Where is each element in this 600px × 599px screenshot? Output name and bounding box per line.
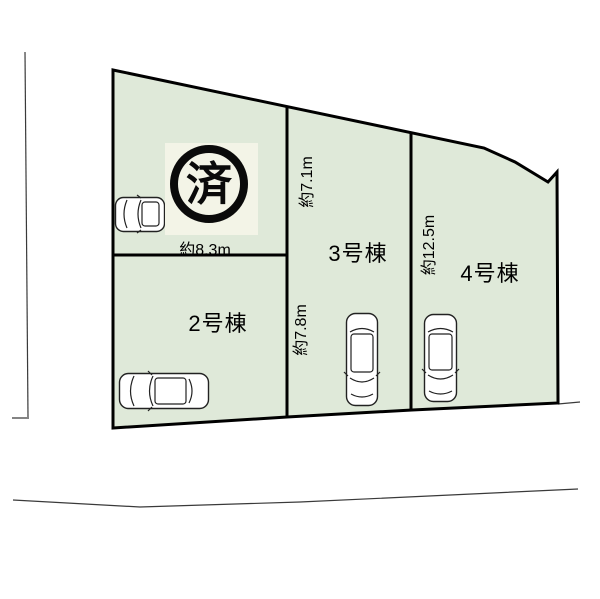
plot2-label: 2号棟 xyxy=(158,306,278,338)
road-edge-bottom xyxy=(13,489,578,507)
plot3-label: 3号棟 xyxy=(298,236,418,268)
car-icon-plot1 xyxy=(116,195,165,233)
sold-circle-icon: 済 xyxy=(170,145,248,223)
dimension-depth-lower: 約7.8m xyxy=(287,295,305,365)
plot4-label: 4号棟 xyxy=(430,256,550,288)
sold-mark-text: 済 xyxy=(186,161,232,207)
car-icon-plot4 xyxy=(422,315,459,402)
dimension-front-width: 約8.3m xyxy=(145,236,265,260)
site-plan-diagram: 済 約8.3m 約7.1m 約7.8m 約12.5m 2号棟 3号棟 4号棟 xyxy=(0,0,600,599)
dimension-depth-upper: 約7.1m xyxy=(293,147,311,217)
car-icon-plot2 xyxy=(120,371,209,411)
road-edge-right-stub xyxy=(558,402,580,404)
sold-stamp-box: 済 xyxy=(165,143,258,235)
road-edge-left xyxy=(25,52,28,417)
car-icon-plot3 xyxy=(344,314,380,406)
